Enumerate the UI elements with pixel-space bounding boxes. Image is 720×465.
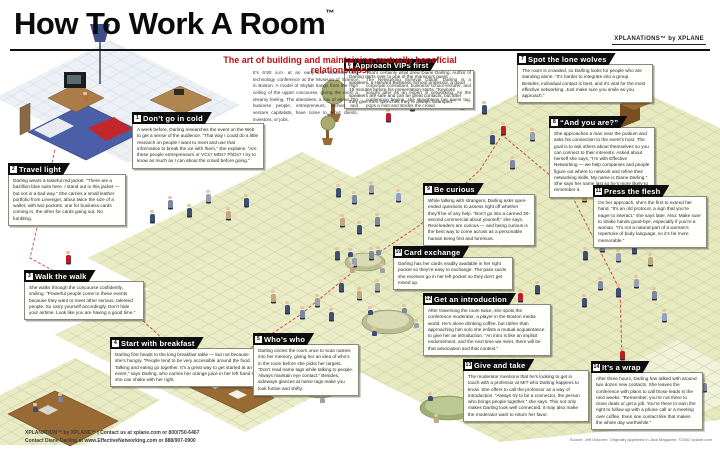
section-title: Don’t go in cold	[143, 114, 203, 123]
person-figure	[205, 190, 211, 202]
diane-figure	[619, 347, 625, 359]
section-header: 13Give and take	[463, 359, 534, 371]
section-body: While talking with strangers, Darling as…	[423, 194, 535, 246]
section-title: Start with breakfast	[121, 339, 195, 348]
callout-its-a-wrap: 14It’s a wrapAfter three hours, Darling …	[591, 361, 703, 430]
section-title: Get an introduction	[434, 295, 507, 304]
diane-figure	[385, 109, 391, 121]
person-figure	[401, 304, 407, 313]
person-figure	[314, 294, 320, 306]
section-title: Be curious	[434, 185, 475, 194]
person-figure	[529, 128, 535, 140]
section-title: Travel light	[19, 165, 61, 174]
section-title: It’s a wrap	[602, 363, 641, 372]
person-figure	[299, 306, 305, 318]
callout-spot-the-lone-wolves: 7Spot the lone wolvesThe room is crowded…	[517, 53, 653, 103]
section-body: A week before, Darling researches the ev…	[132, 123, 264, 169]
person-figure	[395, 189, 401, 201]
diane-figure	[65, 251, 71, 263]
diane-figure	[500, 122, 506, 134]
person-figure	[633, 275, 639, 287]
xplane-logo: XPLANATiONS™ by XPLANE	[612, 36, 706, 45]
person-figure	[374, 279, 380, 291]
callout-be-curious: 9Be curiousWhile talking with strangers,…	[423, 183, 535, 246]
callout-press-the-flesh: 11Press the fleshOn her approach, she’s …	[593, 185, 707, 248]
person-figure	[368, 247, 374, 259]
person-figure	[427, 392, 433, 401]
callout-start-with-breakfast: 4Start with breakfastDarling first heads…	[110, 337, 264, 387]
poster-title: How To Work A Room™	[14, 6, 334, 42]
person-figure	[356, 221, 362, 233]
section-title: Press the flesh	[604, 187, 660, 196]
person-figure	[534, 281, 540, 293]
person-figure	[433, 414, 439, 423]
section-title: Give and take	[474, 361, 525, 370]
section-body: Darling has her cards readily available …	[393, 257, 513, 290]
section-header: 1Don’t go in cold	[132, 112, 212, 124]
person-figure	[581, 294, 587, 306]
section-number-badge: 2	[10, 166, 17, 173]
callout-dont-go-in-cold: 1Don’t go in coldA week before, Darling …	[132, 112, 264, 169]
person-figure	[371, 327, 377, 336]
section-header: 10Card exchange	[393, 246, 469, 258]
section-number-badge: 4	[112, 340, 119, 347]
person-figure	[368, 181, 374, 193]
section-body: On her approach, she’s the first to exte…	[593, 196, 707, 248]
section-number-badge: 5	[255, 336, 262, 343]
section-number-badge: 14	[593, 364, 600, 371]
intro-paragraph-1: It’s 6:50 a.m. at an early-hour business…	[253, 70, 358, 123]
person-figure	[334, 247, 340, 259]
section-header: 2Travel light	[8, 163, 70, 175]
section-number-badge: 12	[425, 296, 432, 303]
intro-paragraph-2: That’s certainly what drew Diane Darling…	[366, 70, 471, 110]
section-header: 5Who’s who	[253, 333, 314, 345]
section-header: 14It’s a wrap	[591, 361, 650, 373]
section-header: 4Start with breakfast	[110, 337, 204, 349]
person-figure	[32, 403, 38, 412]
footer-contact-line2: Contact Diane Darling at www.EffectiveNe…	[25, 438, 196, 444]
person-figure	[582, 247, 588, 259]
person-figure	[615, 249, 621, 261]
section-number-badge: 11	[595, 188, 602, 195]
section-body: The room is crowded, so Darling looks fo…	[517, 64, 653, 103]
person-figure	[597, 277, 603, 289]
person-figure	[186, 204, 192, 216]
section-header: 7Spot the lone wolves	[517, 53, 616, 65]
person-figure	[328, 308, 334, 320]
callout-get-an-introduction: 12Get an introductionAfter traversing th…	[423, 293, 551, 356]
callout-whos-who: 5Who’s whoDarling circles the room once …	[253, 333, 359, 396]
person-figure	[489, 131, 495, 143]
section-header: 3Walk the walk	[24, 270, 96, 282]
person-figure	[149, 210, 155, 222]
section-number-badge: 13	[465, 362, 472, 369]
section-header: 8“And you are?”	[549, 116, 627, 128]
title-rule	[10, 49, 710, 51]
person-figure	[270, 290, 276, 302]
person-figure	[651, 287, 657, 299]
section-body: She walks through the concourse confiden…	[24, 281, 144, 320]
person-figure	[356, 287, 362, 299]
section-number-badge: 10	[395, 249, 402, 256]
section-body: Darling wears a tasteful red jacket. “Th…	[8, 174, 126, 226]
section-number-badge: 8	[551, 119, 558, 126]
section-header: 12Get an introduction	[423, 293, 516, 305]
poster-canvas: 1Don’t go in coldA week before, Darling …	[0, 0, 720, 465]
person-figure	[339, 214, 345, 226]
person-figure	[481, 101, 487, 113]
section-number-badge: 7	[519, 56, 526, 63]
person-figure	[374, 213, 380, 225]
person-figure	[375, 246, 381, 255]
person-figure	[509, 156, 515, 168]
person-figure	[615, 284, 621, 296]
person-figure	[82, 92, 88, 101]
person-figure	[335, 184, 341, 196]
person-figure	[284, 301, 290, 313]
callout-walk-the-walk: 3Walk the walkShe walks through the conc…	[24, 270, 144, 320]
person-figure	[57, 393, 63, 402]
callout-give-and-take: 13Give and takeThe moderator mentions th…	[463, 359, 589, 422]
person-figure	[347, 248, 353, 257]
section-number-badge: 3	[26, 273, 33, 280]
section-title: Spot the lone wolves	[528, 55, 607, 64]
person-figure	[351, 191, 357, 203]
person-figure	[413, 319, 419, 328]
section-body: The moderator mentions that he’s looking…	[463, 370, 589, 422]
section-body: Darling circles the room once to scan na…	[253, 344, 359, 396]
footer-contact-line1: XPLANATION™ by XPLANE™ | Contact us at x…	[25, 430, 199, 436]
person-figure	[367, 306, 373, 315]
section-title: Who’s who	[264, 335, 305, 344]
trademark-symbol: ™	[325, 8, 334, 18]
source-credit: Source: Jeff Osborne. Originally appeare…	[460, 437, 712, 442]
person-figure	[647, 253, 653, 265]
section-number-badge: 9	[425, 186, 432, 193]
person-figure	[338, 279, 344, 291]
section-body: Darling first heads to the long breakfas…	[110, 348, 264, 387]
person-figure	[225, 207, 231, 219]
person-figure	[349, 264, 355, 273]
callout-card-exchange: 10Card exchangeDarling has her cards rea…	[393, 246, 513, 290]
section-body: After traversing the room twice, she spo…	[423, 304, 551, 356]
person-figure	[661, 309, 667, 321]
section-title: Card exchange	[404, 248, 460, 257]
poster-title-text: How To Work A Room	[14, 6, 325, 41]
person-figure	[167, 196, 173, 208]
section-header: 9Be curious	[423, 183, 484, 195]
person-figure	[379, 264, 385, 273]
section-header: 11Press the flesh	[593, 185, 669, 197]
section-number-badge: 1	[134, 115, 141, 122]
callout-travel-light: 2Travel lightDarling wears a tasteful re…	[8, 163, 126, 226]
section-title: Walk the walk	[35, 272, 87, 281]
person-figure	[243, 194, 249, 206]
section-body: After three hours, Darling has talked wi…	[591, 372, 703, 430]
section-title: “And you are?”	[560, 118, 618, 127]
